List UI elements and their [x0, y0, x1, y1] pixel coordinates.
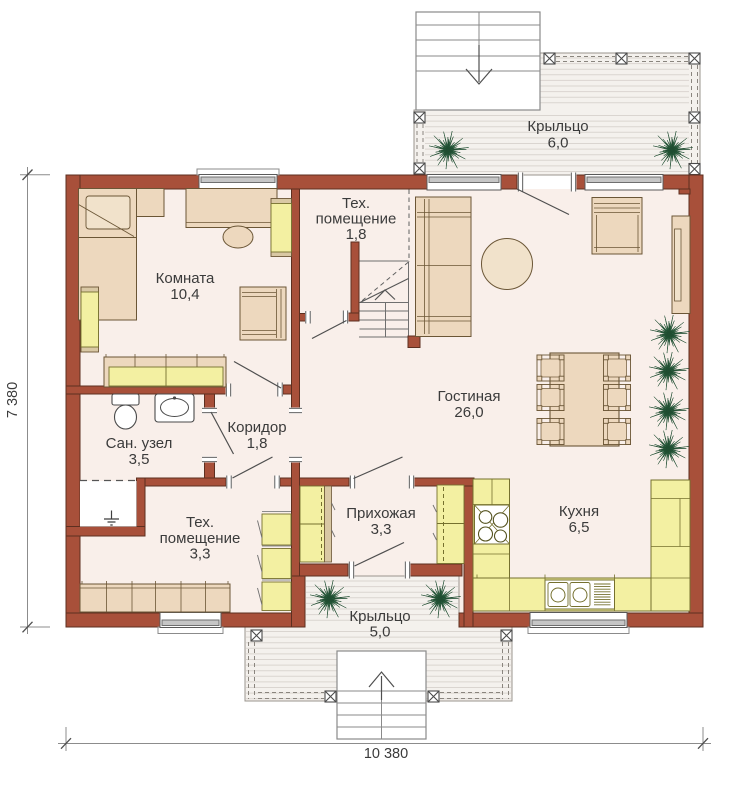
svg-text:Крыльцо: Крыльцо [527, 118, 588, 135]
svg-text:10 380: 10 380 [364, 746, 408, 762]
svg-text:Тех.: Тех. [342, 195, 370, 212]
svg-text:26,0: 26,0 [454, 404, 483, 421]
svg-text:Гостиная: Гостиная [438, 388, 501, 405]
svg-text:3,3: 3,3 [371, 521, 392, 538]
svg-text:1,8: 1,8 [247, 435, 268, 452]
svg-text:Коридор: Коридор [227, 419, 286, 436]
svg-text:помещение: помещение [316, 211, 397, 228]
svg-text:3,5: 3,5 [129, 451, 150, 468]
svg-text:3,3: 3,3 [190, 546, 211, 563]
svg-text:Комната: Комната [156, 270, 215, 287]
svg-text:5,0: 5,0 [370, 624, 391, 641]
svg-text:Сан. узел: Сан. узел [106, 435, 173, 452]
svg-text:помещение: помещение [160, 530, 241, 547]
svg-text:7 380: 7 380 [5, 382, 21, 418]
svg-text:Кухня: Кухня [559, 503, 599, 520]
svg-text:6,0: 6,0 [548, 135, 569, 152]
svg-text:6,5: 6,5 [569, 519, 590, 536]
svg-text:Прихожая: Прихожая [346, 505, 416, 522]
svg-text:Крыльцо: Крыльцо [349, 608, 410, 625]
svg-text:1,8: 1,8 [346, 226, 367, 243]
svg-text:10,4: 10,4 [170, 286, 199, 303]
svg-text:Тех.: Тех. [186, 514, 214, 531]
